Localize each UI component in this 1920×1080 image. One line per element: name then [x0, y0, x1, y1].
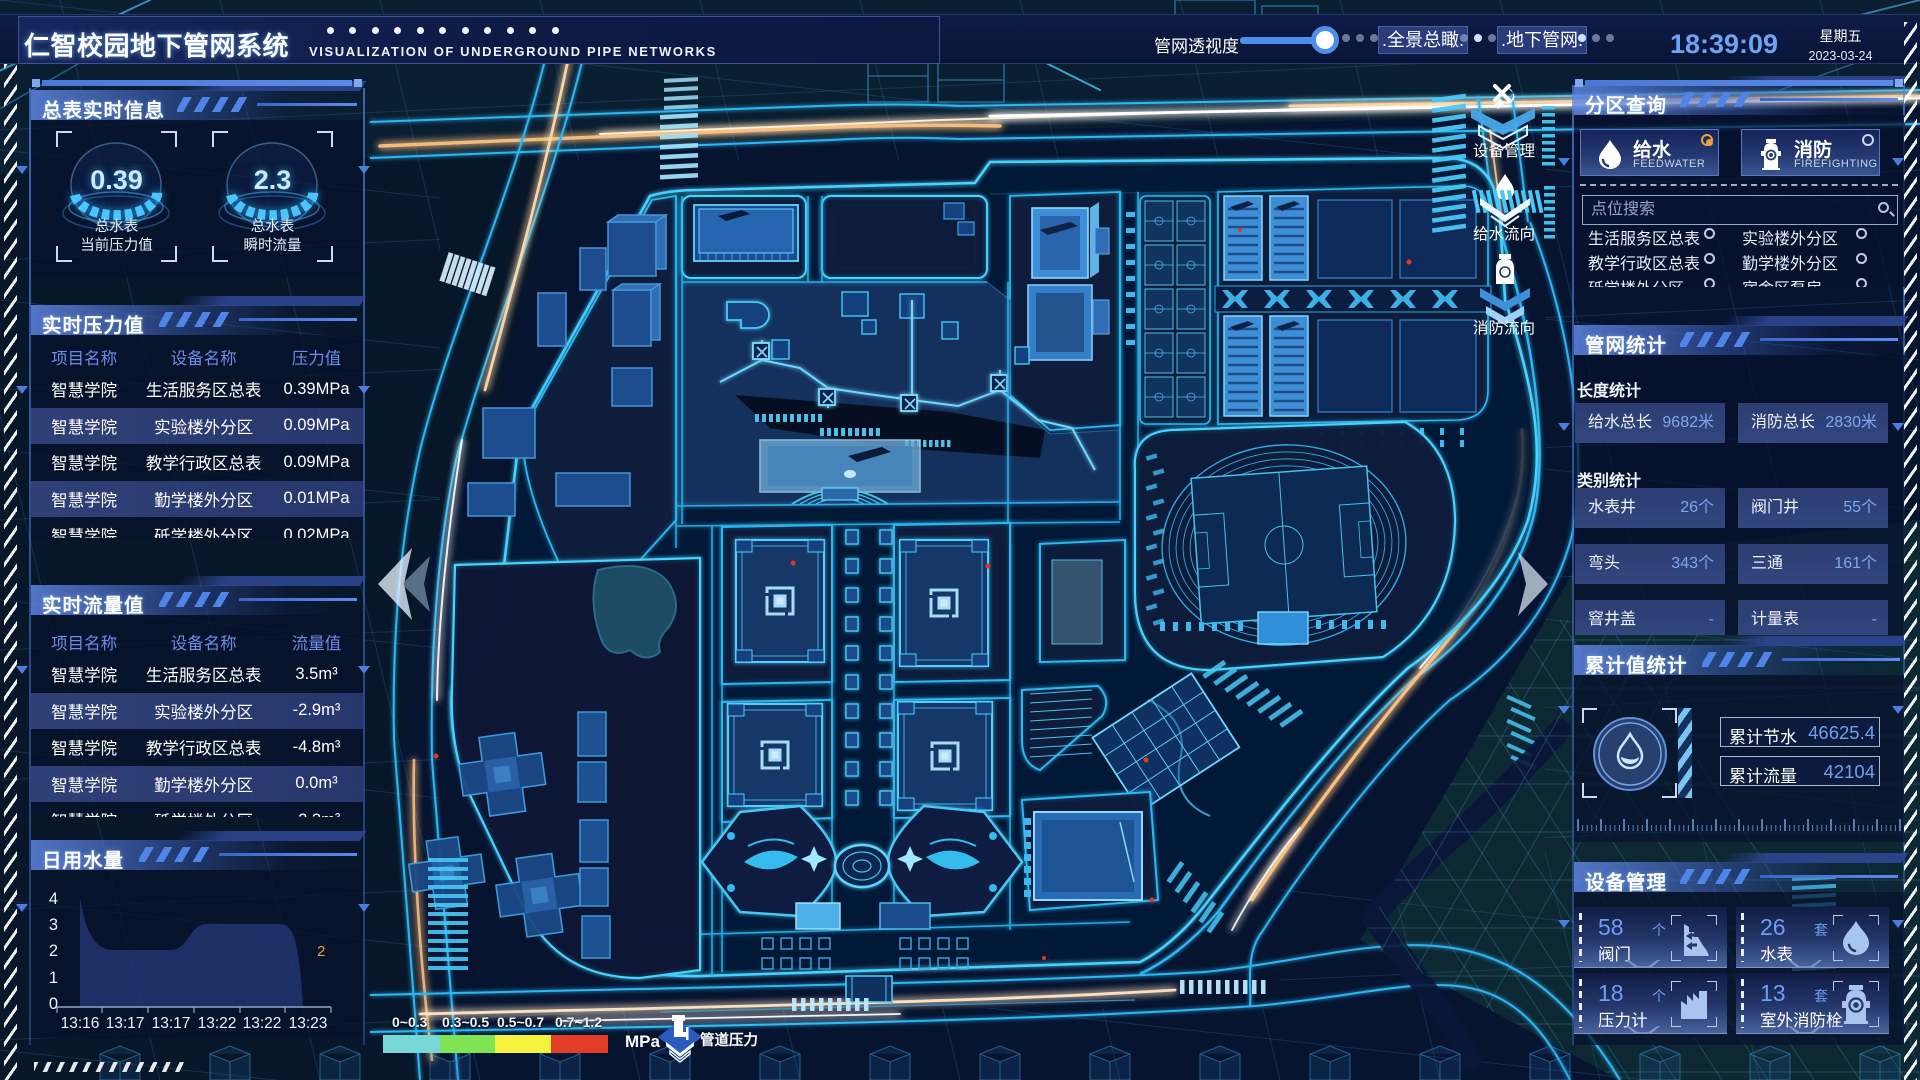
svg-text:13:22: 13:22	[243, 1015, 282, 1032]
svg-text:2: 2	[317, 943, 325, 960]
svg-text:设备管理: 设备管理	[1473, 142, 1535, 160]
svg-text:给水流向: 给水流向	[1473, 225, 1535, 243]
svg-text:13:23: 13:23	[289, 1015, 328, 1032]
svg-text:4: 4	[49, 890, 58, 908]
svg-text:0: 0	[49, 995, 58, 1013]
svg-text:13:17: 13:17	[152, 1015, 191, 1032]
svg-text:1: 1	[49, 969, 58, 987]
svg-text:13:17: 13:17	[106, 1015, 145, 1032]
svg-text:消防流向: 消防流向	[1473, 319, 1535, 337]
svg-text:3: 3	[49, 916, 58, 934]
svg-text:13:16: 13:16	[61, 1015, 100, 1032]
svg-text:13:22: 13:22	[198, 1015, 237, 1032]
svg-text:2: 2	[49, 942, 58, 960]
